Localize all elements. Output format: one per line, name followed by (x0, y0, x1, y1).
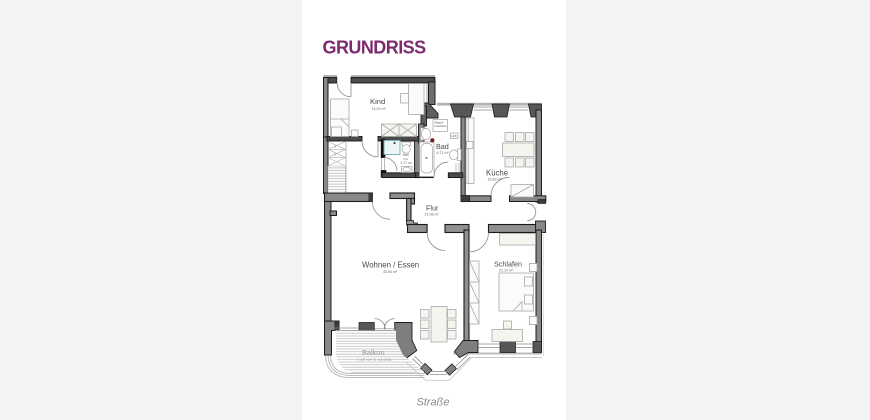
svg-text:21.08 m²: 21.08 m² (425, 213, 440, 217)
svg-text:Balkon: Balkon (362, 348, 385, 357)
svg-text:Straße: Straße (417, 397, 450, 409)
svg-text:GRUNDRISS: GRUNDRISS (323, 38, 427, 58)
svg-text:Bad: Bad (436, 142, 449, 151)
svg-text:2: 2 (333, 145, 336, 149)
svg-text:7.89 m² 2 ×3.345: 7.89 m² 2 ×3.345 (357, 357, 392, 362)
svg-text:Flur: Flur (426, 204, 439, 213)
svg-text:Schlafen: Schlafen (494, 260, 522, 269)
svg-text:maschine: maschine (435, 124, 448, 128)
svg-text:Wohnen / Essen: Wohnen / Essen (362, 261, 419, 270)
svg-text:2: 2 (333, 153, 336, 157)
svg-text:3.17 m²: 3.17 m² (401, 161, 413, 165)
svg-text:6.71 m²: 6.71 m² (437, 151, 450, 155)
svg-text:Küche: Küche (486, 169, 508, 178)
svg-text:Kind: Kind (370, 97, 385, 106)
svg-text:HZK: HZK (452, 134, 457, 138)
svg-text:16.83 m²: 16.83 m² (488, 178, 503, 182)
svg-text:45.90 m²: 45.90 m² (383, 270, 398, 274)
svg-text:21.10 m²: 21.10 m² (499, 269, 514, 273)
svg-text:14.02 m²: 14.02 m² (372, 107, 387, 111)
